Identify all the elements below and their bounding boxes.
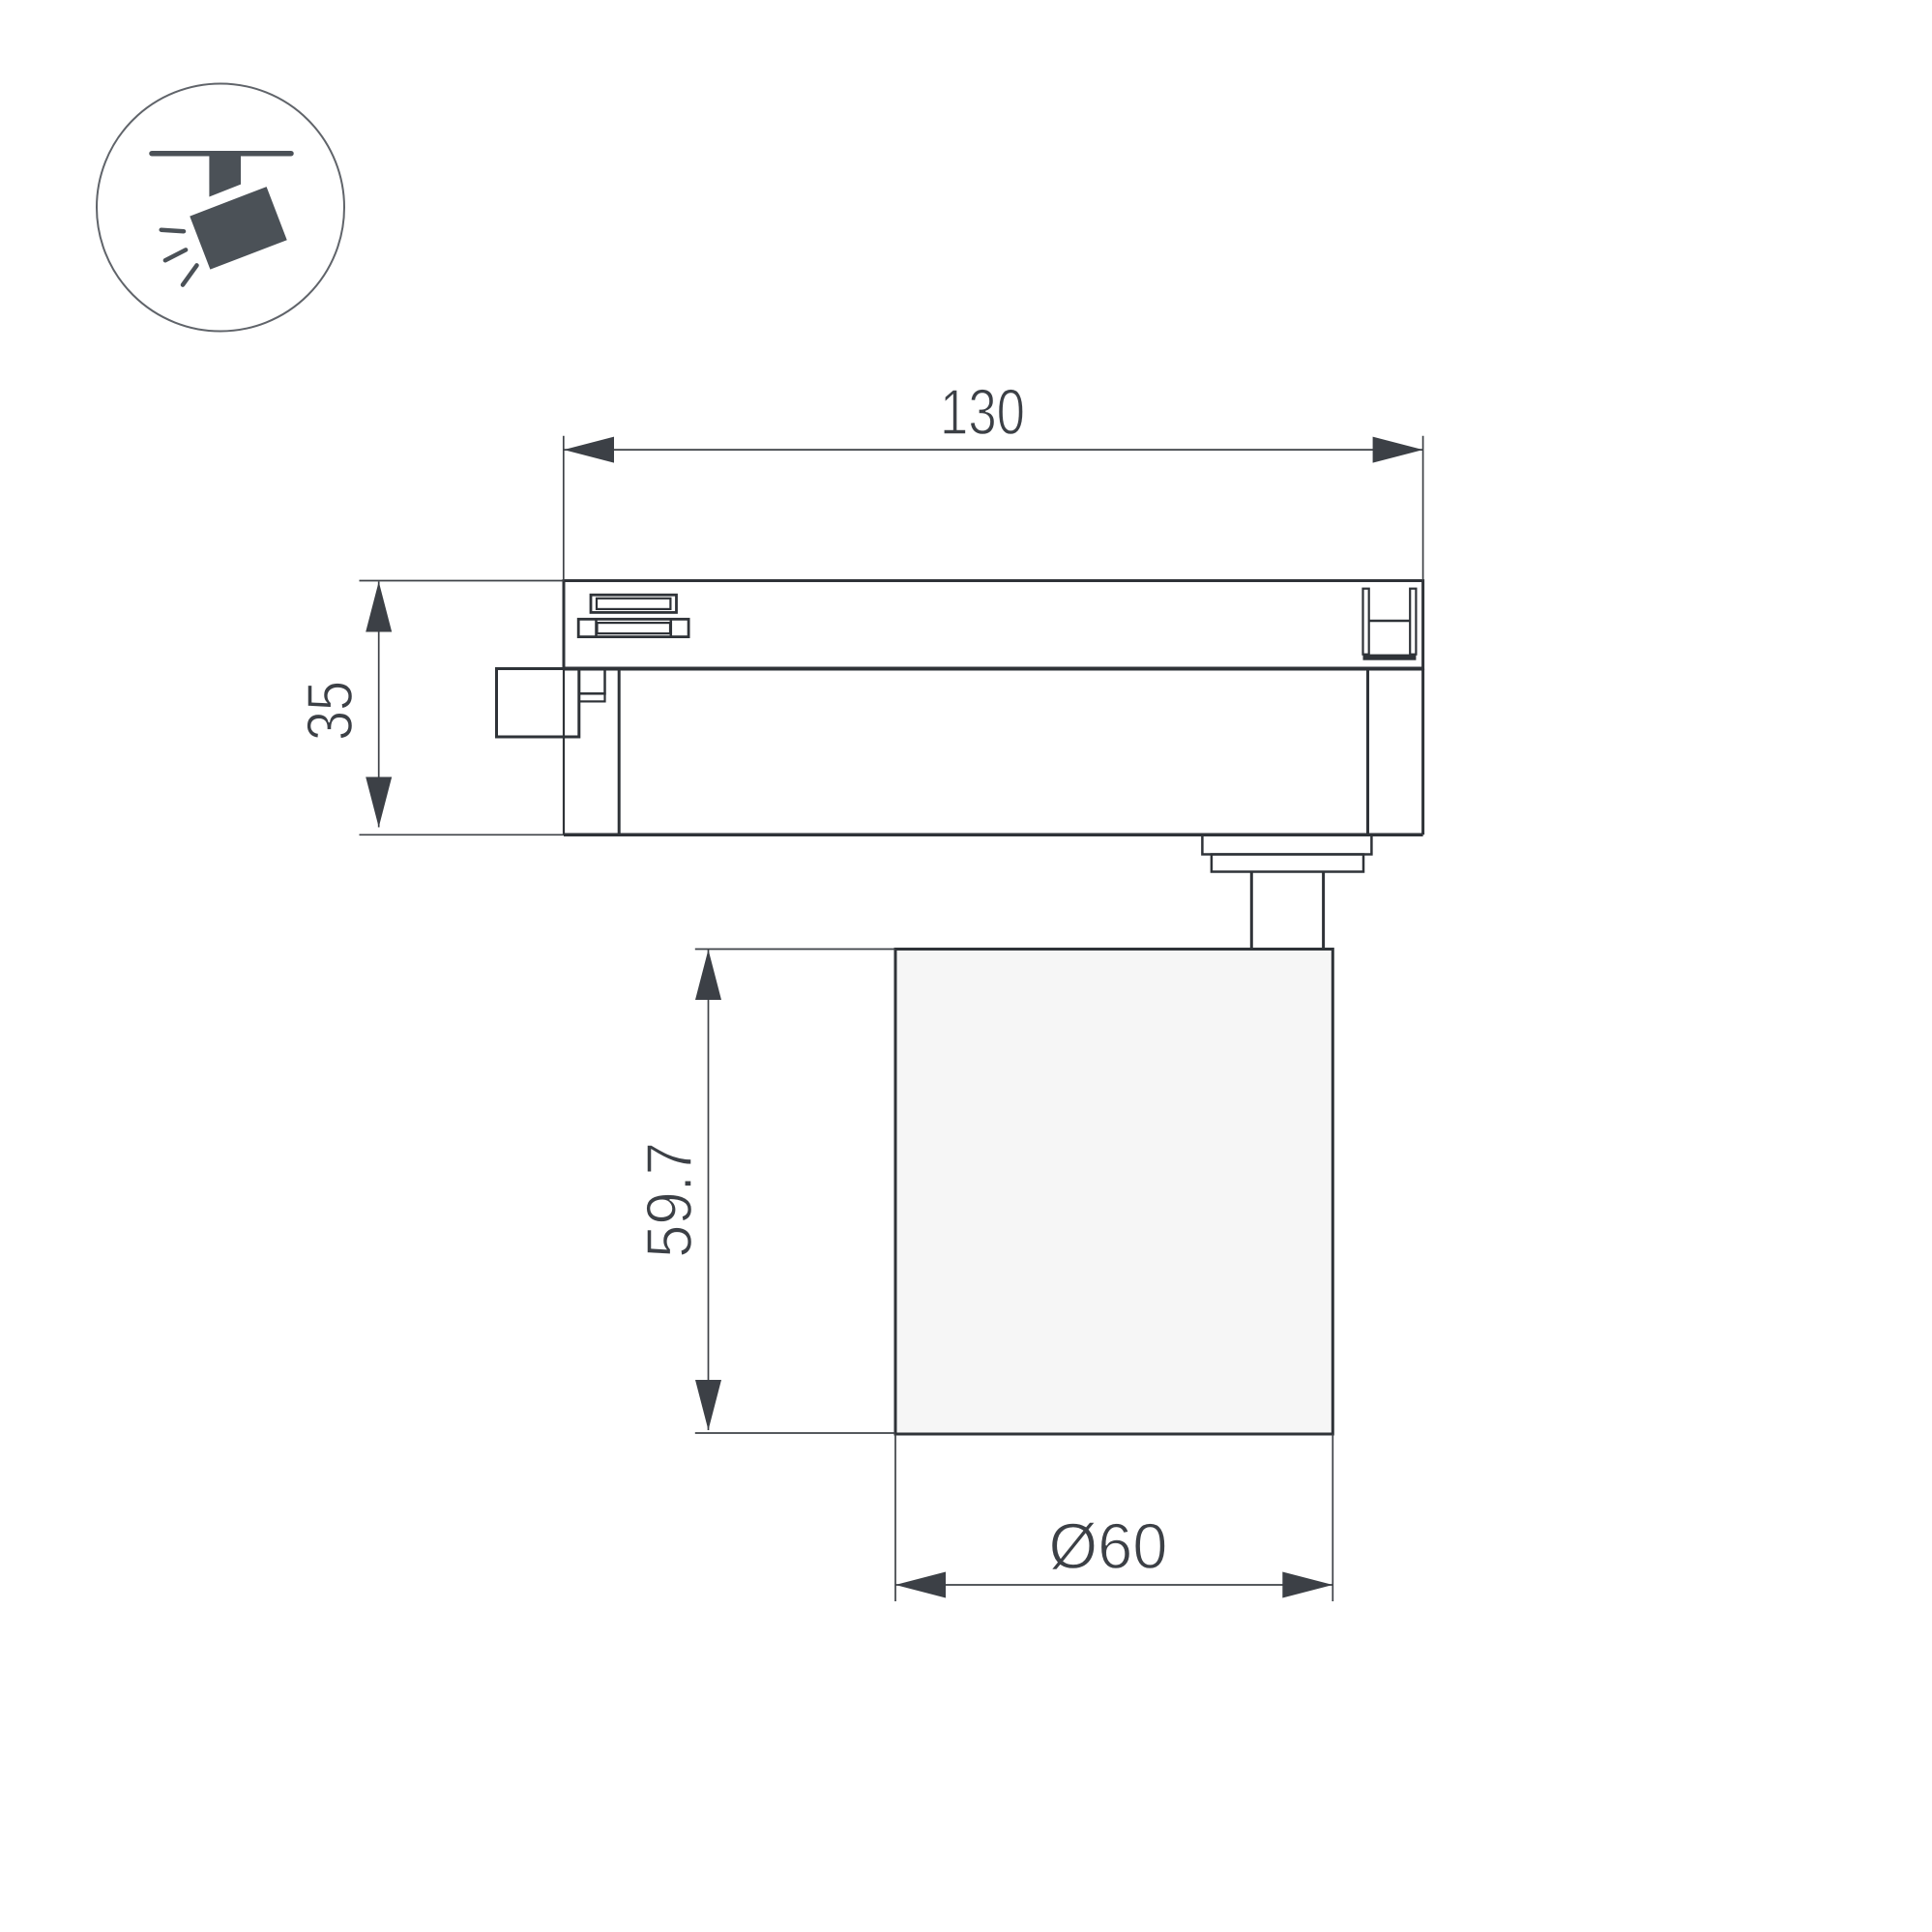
svg-text:130: 130 xyxy=(940,376,1025,449)
svg-text:35: 35 xyxy=(294,681,366,741)
svg-text:59.7: 59.7 xyxy=(633,1142,706,1258)
svg-text:Ø60: Ø60 xyxy=(1049,1510,1168,1583)
